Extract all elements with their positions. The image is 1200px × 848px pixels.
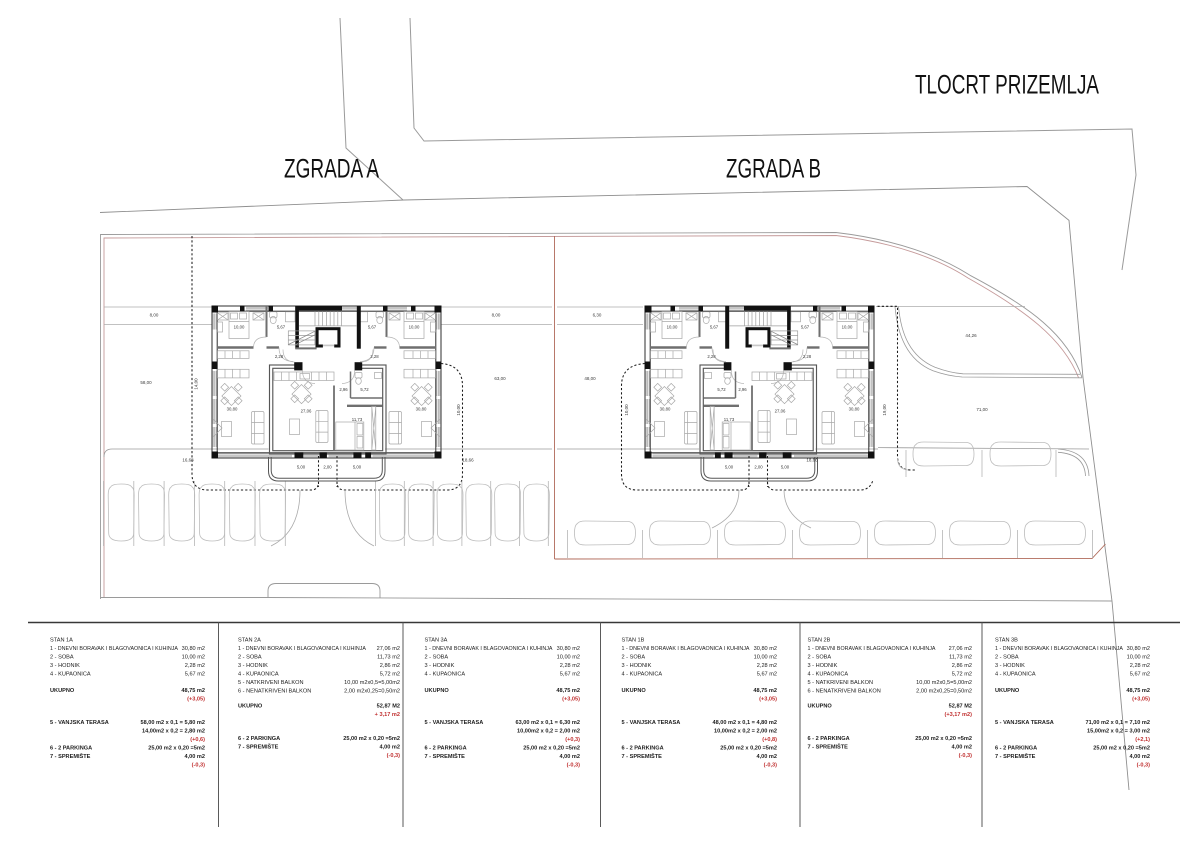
svg-text:48,00: 48,00: [584, 376, 596, 381]
svg-text:4,00 m2: 4,00 m2: [379, 745, 400, 751]
svg-text:19,00: 19,00: [882, 404, 887, 416]
svg-text:1 - DNEVNI BORAVAK I BLAGOVAON: 1 - DNEVNI BORAVAK I BLAGOVAONICA I KUHI…: [808, 646, 936, 652]
svg-text:STAN 3A: STAN 3A: [425, 638, 448, 644]
svg-text:11,73 m2: 11,73 m2: [377, 655, 400, 661]
svg-text:30,80 m2: 30,80 m2: [182, 646, 205, 652]
svg-text:6 - 2 PARKINGA: 6 - 2 PARKINGA: [50, 746, 92, 752]
svg-text:2 - SOBA: 2 - SOBA: [995, 655, 1019, 661]
svg-text:5,67 m2: 5,67 m2: [185, 672, 205, 678]
svg-text:(-0,3): (-0,3): [387, 753, 401, 759]
svg-text:2,00 m2x0,25=0,50m2: 2,00 m2x0,25=0,50m2: [344, 689, 400, 695]
svg-text:30,80 m2: 30,80 m2: [1127, 646, 1150, 652]
svg-text:4 - KUPAONICA: 4 - KUPAONICA: [808, 672, 849, 678]
svg-text:10,00 m2: 10,00 m2: [182, 655, 205, 661]
svg-text:UKUPNO: UKUPNO: [50, 688, 75, 694]
svg-text:4 - KUPAONICA: 4 - KUPAONICA: [425, 672, 466, 678]
svg-text:52,87 M2: 52,87 M2: [949, 704, 972, 710]
svg-text:63,00: 63,00: [494, 376, 506, 381]
svg-text:STAN 3B: STAN 3B: [995, 638, 1018, 644]
svg-text:6 - NENATKRIVENI BALKON: 6 - NENATKRIVENI BALKON: [238, 689, 311, 695]
svg-text:+ 3,17 m2: + 3,17 m2: [375, 712, 400, 718]
svg-text:1 - DNEVNI BORAVAK I BLAGOVAON: 1 - DNEVNI BORAVAK I BLAGOVAONICA I KUHI…: [50, 646, 178, 652]
svg-text:16,68: 16,68: [182, 458, 194, 463]
svg-text:30,80 m2: 30,80 m2: [754, 646, 777, 652]
svg-text:25,00 m2 x 0,20 =5m2: 25,00 m2 x 0,20 =5m2: [720, 746, 777, 752]
svg-text:15,00m2 x 0,2 = 3,00 m2: 15,00m2 x 0,2 = 3,00 m2: [1087, 729, 1150, 735]
svg-text:STAN 1A: STAN 1A: [50, 638, 73, 644]
svg-text:52,87 M2: 52,87 M2: [377, 704, 400, 710]
svg-text:2 - SOBA: 2 - SOBA: [238, 655, 262, 661]
svg-text:7 - SPREMIŠTE: 7 - SPREMIŠTE: [238, 743, 279, 751]
svg-text:5,00: 5,00: [725, 465, 734, 470]
svg-text:10,00 m2: 10,00 m2: [754, 655, 777, 661]
svg-text:11,73: 11,73: [352, 417, 363, 422]
svg-text:3 - HODNIK: 3 - HODNIK: [425, 663, 455, 669]
svg-text:STAN 2A: STAN 2A: [238, 638, 261, 644]
svg-text:(-0,3): (-0,3): [1137, 763, 1151, 769]
svg-text:(+0,3): (+0,3): [565, 737, 580, 743]
svg-text:UKUPNO: UKUPNO: [238, 704, 263, 710]
svg-text:10,00m2 x 0,2 = 2,00 m2: 10,00m2 x 0,2 = 2,00 m2: [714, 729, 777, 735]
svg-text:(+3,05): (+3,05): [759, 697, 777, 703]
svg-text:5,67 m2: 5,67 m2: [560, 672, 580, 678]
svg-text:27,06: 27,06: [775, 409, 786, 414]
svg-text:2 - SOBA: 2 - SOBA: [808, 655, 832, 661]
svg-text:3 - HODNIK: 3 - HODNIK: [238, 663, 268, 669]
svg-text:5 - VANJSKA TERASA: 5 - VANJSKA TERASA: [425, 720, 484, 726]
svg-text:(-0,3): (-0,3): [764, 763, 778, 769]
svg-text:6 - NENATKRIVENI BALKON: 6 - NENATKRIVENI BALKON: [808, 689, 881, 695]
svg-text:14,00m2 x 0,2 = 2,80 m2: 14,00m2 x 0,2 = 2,80 m2: [142, 729, 205, 735]
svg-text:30,80: 30,80: [227, 407, 238, 412]
svg-text:48,75 m2: 48,75 m2: [753, 688, 777, 694]
svg-text:71,00 m2 x 0,1 = 7,10 m2: 71,00 m2 x 0,1 = 7,10 m2: [1085, 720, 1150, 726]
svg-text:2,28: 2,28: [803, 354, 812, 359]
svg-text:25,00 m2 x 0,20 =5m2: 25,00 m2 x 0,20 =5m2: [148, 746, 205, 752]
svg-text:5,72: 5,72: [360, 387, 369, 392]
svg-text:8,00: 8,00: [150, 313, 159, 318]
svg-text:7 - SPREMIŠTE: 7 - SPREMIŠTE: [425, 752, 466, 760]
svg-text:7 - SPREMIŠTE: 7 - SPREMIŠTE: [995, 752, 1036, 760]
svg-text:25,00 m2 x 0,20 =5m2: 25,00 m2 x 0,20 =5m2: [343, 736, 400, 742]
svg-text:10,00: 10,00: [624, 404, 629, 416]
svg-text:(-0,3): (-0,3): [567, 763, 581, 769]
svg-text:ZGRADA B: ZGRADA B: [726, 154, 821, 184]
svg-text:3 - HODNIK: 3 - HODNIK: [995, 663, 1025, 669]
svg-text:48,75 m2: 48,75 m2: [1126, 688, 1150, 694]
svg-text:4 - KUPAONICA: 4 - KUPAONICA: [995, 672, 1036, 678]
svg-text:ZGRADA A: ZGRADA A: [284, 154, 379, 184]
svg-text:4,00 m2: 4,00 m2: [756, 754, 777, 760]
svg-text:25,00 m2 x 0,20 =5m2: 25,00 m2 x 0,20 =5m2: [1093, 746, 1150, 752]
svg-text:(+3,05): (+3,05): [187, 697, 205, 703]
svg-text:(-0,3): (-0,3): [192, 763, 206, 769]
svg-text:5,67: 5,67: [710, 325, 719, 330]
svg-text:4,00 m2: 4,00 m2: [951, 745, 972, 751]
svg-text:5 - NATKRIVENI BALKON: 5 - NATKRIVENI BALKON: [808, 680, 873, 686]
svg-text:5 - VANJSKA TERASA: 5 - VANJSKA TERASA: [995, 720, 1054, 726]
svg-text:25,00 m2 x 0,20 =5m2: 25,00 m2 x 0,20 =5m2: [915, 736, 972, 742]
svg-text:48,00 m2 x 0,1 = 4,80 m2: 48,00 m2 x 0,1 = 4,80 m2: [712, 720, 777, 726]
svg-text:2,00 m2x0,25=0,50m2: 2,00 m2x0,25=0,50m2: [916, 689, 972, 695]
svg-text:6 - 2 PARKINGA: 6 - 2 PARKINGA: [622, 746, 664, 752]
svg-text:2,96: 2,96: [738, 387, 747, 392]
svg-text:58,00 m2 x 0,1 = 5,80 m2: 58,00 m2 x 0,1 = 5,80 m2: [140, 720, 205, 726]
svg-text:2,28 m2: 2,28 m2: [1130, 663, 1150, 669]
svg-text:2,28 m2: 2,28 m2: [560, 663, 580, 669]
svg-text:(+3,17 m2): (+3,17 m2): [944, 712, 972, 718]
svg-text:UKUPNO: UKUPNO: [808, 704, 833, 710]
svg-text:(+0,8): (+0,8): [762, 737, 777, 743]
svg-text:10,00 m2: 10,00 m2: [1127, 655, 1150, 661]
svg-text:2,86 m2: 2,86 m2: [952, 663, 972, 669]
svg-text:11,73: 11,73: [724, 417, 735, 422]
svg-text:7 - SPREMIŠTE: 7 - SPREMIŠTE: [808, 743, 849, 751]
svg-text:3 - HODNIK: 3 - HODNIK: [808, 663, 838, 669]
svg-text:48,75 m2: 48,75 m2: [181, 688, 205, 694]
svg-text:2,86 m2: 2,86 m2: [380, 663, 400, 669]
svg-text:27,06: 27,06: [301, 409, 312, 414]
svg-text:5,72 m2: 5,72 m2: [952, 672, 972, 678]
svg-text:11,73 m2: 11,73 m2: [949, 655, 972, 661]
svg-text:TLOCRT PRIZEMLJA: TLOCRT PRIZEMLJA: [915, 70, 1099, 100]
svg-text:6 - 2 PARKINGA: 6 - 2 PARKINGA: [808, 736, 850, 742]
svg-text:10,00 m2x0,5=5,00m2: 10,00 m2x0,5=5,00m2: [344, 680, 400, 686]
svg-text:STAN 1B: STAN 1B: [622, 638, 645, 644]
svg-text:18,66: 18,66: [806, 458, 818, 463]
svg-text:2 - SOBA: 2 - SOBA: [50, 655, 74, 661]
svg-text:4,00 m2: 4,00 m2: [559, 754, 580, 760]
svg-text:10,00: 10,00: [456, 404, 461, 416]
svg-text:2,96: 2,96: [339, 387, 348, 392]
svg-text:71,00: 71,00: [976, 407, 988, 412]
svg-text:STAN 2B: STAN 2B: [808, 638, 831, 644]
svg-text:10,00: 10,00: [667, 325, 678, 330]
svg-text:58,00: 58,00: [140, 380, 152, 385]
svg-text:7 - SPREMIŠTE: 7 - SPREMIŠTE: [622, 752, 663, 760]
svg-text:2,28: 2,28: [707, 354, 716, 359]
svg-text:5,67: 5,67: [368, 325, 377, 330]
svg-text:10,00 m2: 10,00 m2: [557, 655, 580, 661]
svg-text:1 - DNEVNI BORAVAK I BLAGOVAON: 1 - DNEVNI BORAVAK I BLAGOVAONICA I KUHI…: [425, 646, 553, 652]
svg-text:4 - KUPAONICA: 4 - KUPAONICA: [238, 672, 279, 678]
svg-text:27,06 m2: 27,06 m2: [377, 646, 400, 652]
svg-text:UKUPNO: UKUPNO: [622, 688, 647, 694]
svg-text:10,00: 10,00: [234, 325, 245, 330]
svg-text:10,00m2 x 0,2 = 2,00 m2: 10,00m2 x 0,2 = 2,00 m2: [517, 729, 580, 735]
svg-text:5 - VANJSKA TERASA: 5 - VANJSKA TERASA: [622, 720, 681, 726]
svg-text:1 - DNEVNI BORAVAK I BLAGOVAON: 1 - DNEVNI BORAVAK I BLAGOVAONICA I KUHI…: [622, 646, 750, 652]
svg-text:2,00: 2,00: [754, 465, 763, 470]
svg-text:4 - KUPAONICA: 4 - KUPAONICA: [622, 672, 663, 678]
svg-text:4,00 m2: 4,00 m2: [184, 754, 205, 760]
svg-text:(+0,6): (+0,6): [190, 737, 205, 743]
svg-text:5 - VANJSKA TERASA: 5 - VANJSKA TERASA: [50, 720, 109, 726]
svg-text:(+2,1): (+2,1): [1135, 737, 1150, 743]
svg-text:6 - 2 PARKINGA: 6 - 2 PARKINGA: [238, 736, 280, 742]
svg-text:(+3,05): (+3,05): [1132, 697, 1150, 703]
svg-text:2,28 m2: 2,28 m2: [185, 663, 205, 669]
svg-text:2,28: 2,28: [275, 354, 284, 359]
svg-text:7 - SPREMIŠTE: 7 - SPREMIŠTE: [50, 752, 91, 760]
svg-text:4 - KUPAONICA: 4 - KUPAONICA: [50, 672, 91, 678]
svg-text:30,80 m2: 30,80 m2: [557, 646, 580, 652]
svg-text:63,00 m2 x 0,1 = 6,30 m2: 63,00 m2 x 0,1 = 6,30 m2: [515, 720, 580, 726]
svg-text:2 - SOBA: 2 - SOBA: [425, 655, 449, 661]
svg-text:5,00: 5,00: [353, 465, 362, 470]
svg-text:44,26: 44,26: [965, 333, 977, 338]
svg-text:2,28 m2: 2,28 m2: [757, 663, 777, 669]
svg-text:5,67: 5,67: [277, 325, 286, 330]
svg-text:30,80: 30,80: [849, 407, 860, 412]
svg-text:8,00: 8,00: [492, 313, 501, 318]
svg-text:5,67 m2: 5,67 m2: [757, 672, 777, 678]
svg-text:(-0,3): (-0,3): [959, 753, 973, 759]
svg-text:1 - DNEVNI BORAVAK I BLAGOVAON: 1 - DNEVNI BORAVAK I BLAGOVAONICA I KUHI…: [995, 646, 1123, 652]
svg-text:18,66: 18,66: [462, 458, 474, 463]
svg-text:3 - HODNIK: 3 - HODNIK: [622, 663, 652, 669]
svg-text:5,72 m2: 5,72 m2: [380, 672, 400, 678]
svg-text:1 - DNEVNI BORAVAK I BLAGOVAON: 1 - DNEVNI BORAVAK I BLAGOVAONICA I KUHI…: [238, 646, 366, 652]
svg-text:14,00: 14,00: [194, 378, 199, 390]
svg-text:10,00 m2x0,5=5,00m2: 10,00 m2x0,5=5,00m2: [916, 680, 972, 686]
svg-text:2 - SOBA: 2 - SOBA: [622, 655, 646, 661]
svg-text:2,28: 2,28: [370, 354, 379, 359]
svg-text:10,00: 10,00: [842, 325, 853, 330]
svg-text:27,06 m2: 27,06 m2: [949, 646, 972, 652]
svg-text:6,30: 6,30: [593, 313, 602, 318]
svg-text:UKUPNO: UKUPNO: [995, 688, 1020, 694]
svg-text:10,00: 10,00: [409, 325, 420, 330]
svg-text:2,00: 2,00: [323, 465, 332, 470]
svg-text:25,00 m2 x 0,20 =5m2: 25,00 m2 x 0,20 =5m2: [523, 746, 580, 752]
svg-text:6 - 2 PARKINGA: 6 - 2 PARKINGA: [425, 746, 467, 752]
svg-text:3 - HODNIK: 3 - HODNIK: [50, 663, 80, 669]
svg-text:5,00: 5,00: [297, 465, 306, 470]
svg-text:6 - 2 PARKINGA: 6 - 2 PARKINGA: [995, 746, 1037, 752]
svg-text:5,67: 5,67: [801, 325, 810, 330]
svg-text:UKUPNO: UKUPNO: [425, 688, 450, 694]
svg-text:5,72: 5,72: [717, 387, 726, 392]
svg-text:(+3,05): (+3,05): [562, 697, 580, 703]
svg-text:5,00: 5,00: [781, 465, 790, 470]
svg-text:30,80: 30,80: [416, 407, 427, 412]
svg-text:30,80: 30,80: [660, 407, 671, 412]
svg-text:48,75 m2: 48,75 m2: [556, 688, 580, 694]
svg-text:5,67 m2: 5,67 m2: [1130, 672, 1150, 678]
svg-text:4,00 m2: 4,00 m2: [1129, 754, 1150, 760]
svg-text:5 - NATKRIVENI BALKON: 5 - NATKRIVENI BALKON: [238, 680, 303, 686]
